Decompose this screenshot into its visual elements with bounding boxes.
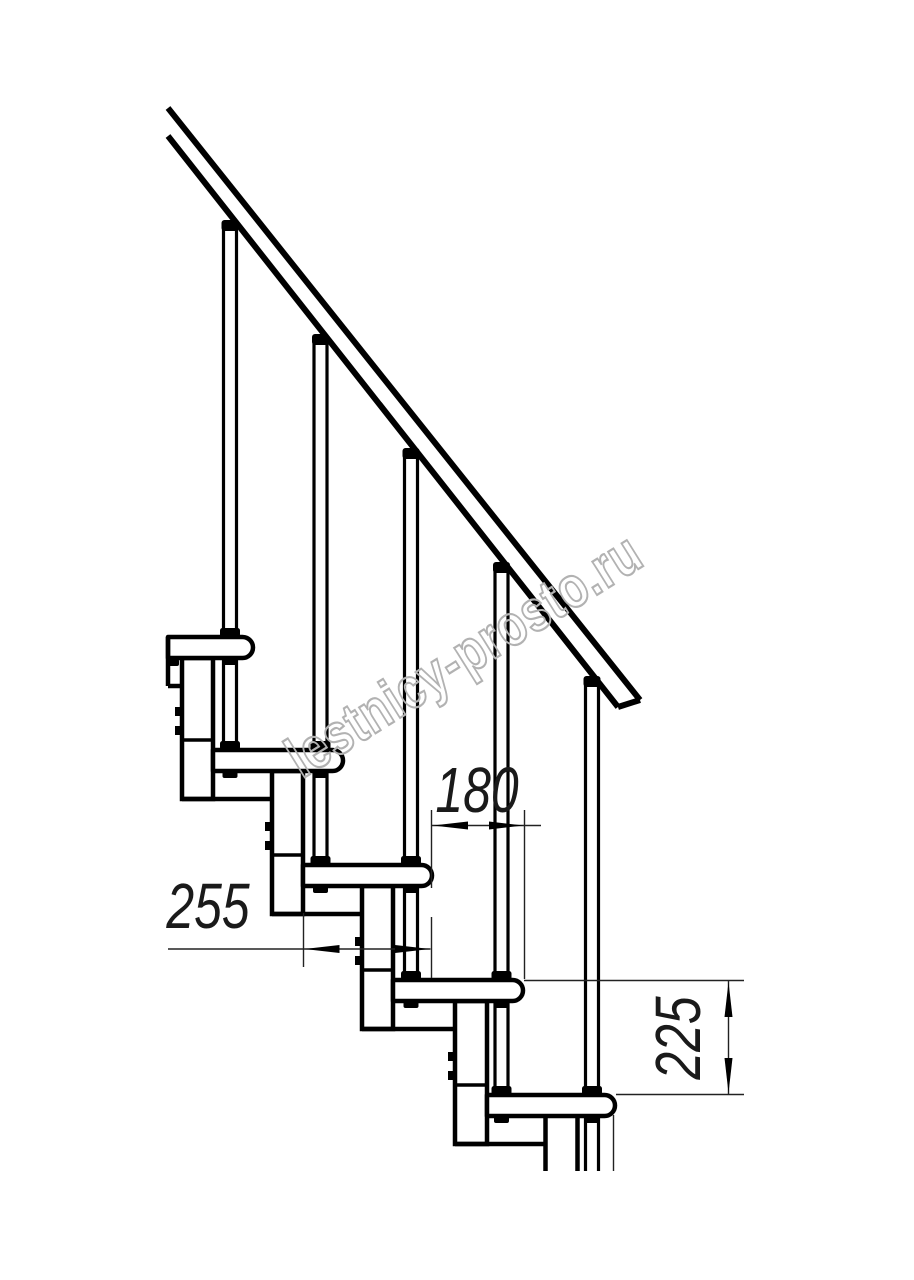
baluster-collar bbox=[401, 856, 421, 865]
baluster-foot-collar bbox=[492, 1086, 512, 1095]
handrail-end-cap bbox=[618, 700, 640, 707]
support-column-body bbox=[272, 771, 303, 914]
tread bbox=[168, 637, 253, 658]
baluster-foot-collar bbox=[401, 971, 421, 980]
baluster bbox=[224, 229, 237, 750]
baluster-collar bbox=[582, 1086, 602, 1095]
baluster-nut bbox=[223, 658, 238, 665]
dimension-label-tread-run: 180 bbox=[435, 755, 518, 826]
arrowhead-up bbox=[725, 982, 733, 1017]
baluster-nut bbox=[585, 1116, 600, 1123]
tread bbox=[303, 865, 432, 886]
tread bbox=[393, 980, 523, 1001]
support-column-bolt bbox=[448, 1071, 455, 1080]
support-column-bolt bbox=[448, 1052, 455, 1061]
support-column-bolt bbox=[175, 707, 182, 716]
baluster-foot-collar bbox=[220, 741, 240, 750]
drawing-canvas: 255 180 225 lestnicy-prosto.ru bbox=[0, 0, 914, 1280]
cut-edge-nut bbox=[168, 659, 179, 666]
baluster-nut bbox=[494, 1001, 509, 1008]
support-column-bolt bbox=[265, 822, 272, 831]
dimension-label-tread-depth: 255 bbox=[165, 871, 250, 942]
support-column-bolt bbox=[175, 726, 182, 735]
dimension-riser-height: 225 bbox=[524, 981, 744, 1095]
dimension-label-riser-height: 225 bbox=[643, 995, 714, 1080]
baluster-nut bbox=[404, 886, 419, 893]
support-column-bolt bbox=[265, 841, 272, 850]
support-column-cut bbox=[546, 1114, 578, 1171]
arrowhead-left bbox=[305, 945, 340, 953]
baluster-collar bbox=[492, 971, 512, 980]
support-column-bolt bbox=[355, 937, 362, 946]
dimension-tread-run: 180 bbox=[431, 755, 541, 979]
support-column-bolt bbox=[355, 956, 362, 965]
arrowhead-down bbox=[725, 1058, 733, 1093]
baluster-foot-nut bbox=[223, 771, 238, 778]
arrowhead-right bbox=[395, 945, 430, 953]
baluster-foot-nut bbox=[494, 1116, 509, 1123]
baluster-foot-collar bbox=[311, 856, 331, 865]
baluster-collar bbox=[220, 628, 240, 637]
support-column-body bbox=[362, 886, 393, 1029]
tread bbox=[487, 1095, 615, 1116]
baluster-foot-nut bbox=[404, 1001, 419, 1008]
support-column-body bbox=[455, 1001, 487, 1144]
support-column-body bbox=[182, 658, 213, 799]
baluster-foot-nut bbox=[313, 886, 328, 893]
